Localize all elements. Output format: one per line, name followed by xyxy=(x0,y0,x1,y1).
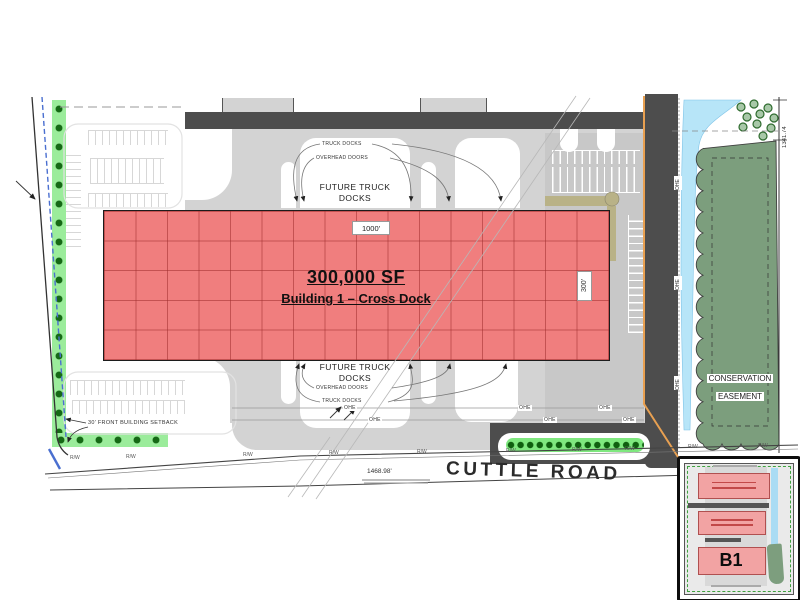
rw-mark: R/W xyxy=(417,449,427,455)
rw-mark: R/W xyxy=(572,447,582,453)
parking-stalls xyxy=(552,167,640,193)
access-road-north xyxy=(185,112,648,129)
inset-b1-label: B1 xyxy=(698,547,764,573)
inset-microtext xyxy=(711,585,761,587)
key-map-plan: B1 xyxy=(684,463,794,595)
rw-mark: R/W xyxy=(506,448,516,454)
parking-stalls xyxy=(66,152,81,247)
parking-stalls xyxy=(88,130,168,145)
pointer-to-boundary xyxy=(16,181,35,199)
road-frontage-dim: 1468.98' xyxy=(367,468,392,475)
lot-entry-notch xyxy=(597,129,615,152)
island xyxy=(421,358,436,404)
inset-green-area xyxy=(767,544,785,585)
ohe-mark: OHE xyxy=(518,405,532,411)
inset-road xyxy=(705,538,741,542)
ohe-mark: OHE xyxy=(368,417,382,423)
site-plan-canvas: 1000' 300' 300,000 SF Building 1 – Cross… xyxy=(0,0,800,600)
utility-line-blue-end xyxy=(49,449,60,469)
overhead-doors-label-bottom: OVERHEAD DOORS xyxy=(316,385,368,391)
rw-mark: R/W xyxy=(329,450,339,456)
landscape-strip-olive xyxy=(545,196,613,206)
parking-stalls xyxy=(72,400,192,414)
building-area-label: 300,000 SF xyxy=(256,267,456,288)
tree-cluster xyxy=(737,100,778,140)
inset-road xyxy=(688,503,769,508)
rw-mark: R/W xyxy=(688,444,698,450)
future-truck-docks-label-top: FUTURE TRUCK DOCKS xyxy=(315,182,395,203)
ohe-mark: OHE xyxy=(543,417,557,423)
landscape-strip-west xyxy=(52,100,66,447)
future-truck-docks-label-bottom: FUTURE TRUCK DOCKS xyxy=(315,362,395,383)
future-dock-area-top-right xyxy=(455,138,520,208)
ohe-mark: OHE xyxy=(674,176,682,190)
conservation-label: CONSERVATION EASEMENT xyxy=(698,368,782,404)
ohe-mark: OHE xyxy=(674,276,682,290)
ohe-mark: OHE xyxy=(598,405,612,411)
truck-docks-label-top: TRUCK DOCKS xyxy=(322,141,362,147)
lot-entry-notch xyxy=(560,129,578,152)
ohe-mark: OHE xyxy=(622,417,636,423)
rw-mark: R/W xyxy=(758,443,768,449)
rw-mark: R/W xyxy=(70,455,80,461)
building-name-label: Building 1 – Cross Dock xyxy=(231,291,481,306)
island xyxy=(421,162,436,208)
parking-stalls xyxy=(90,158,164,184)
ohe-mark: OHE xyxy=(674,376,682,390)
inset-building xyxy=(698,473,770,499)
landscape-strip-southwest xyxy=(52,433,168,447)
parking-stalls xyxy=(628,215,645,333)
inset-building xyxy=(698,511,766,535)
building-depth-dim: 300' xyxy=(577,271,592,301)
truck-docks-label-bottom: TRUCK DOCKS xyxy=(322,398,362,404)
island xyxy=(281,358,296,404)
overhead-doors-label-top: OVERHEAD DOORS xyxy=(316,155,368,161)
rw-mark: R/W xyxy=(243,452,253,458)
rw-mark: R/W xyxy=(625,446,635,452)
inset-microtext xyxy=(713,465,757,467)
building-depth-value: 300' xyxy=(581,279,588,292)
road-name-label: CUTTLE ROAD xyxy=(446,458,621,485)
building-length-value: 1000' xyxy=(362,224,380,233)
east-boundary-dim: 1341.74 xyxy=(782,102,788,148)
building-length-dim: 1000' xyxy=(352,221,390,235)
ohe-mark: OHE xyxy=(343,405,357,411)
rw-mark: R/W xyxy=(126,454,136,460)
corner-cut xyxy=(185,357,230,450)
future-dock-area-bottom-right xyxy=(455,358,518,422)
parking-stalls xyxy=(552,150,640,164)
island xyxy=(281,162,296,208)
key-map-inset: B1 xyxy=(677,456,800,600)
parking-stalls xyxy=(88,193,168,207)
setback-note: 30' FRONT BUILDING SETBACK xyxy=(88,420,178,426)
